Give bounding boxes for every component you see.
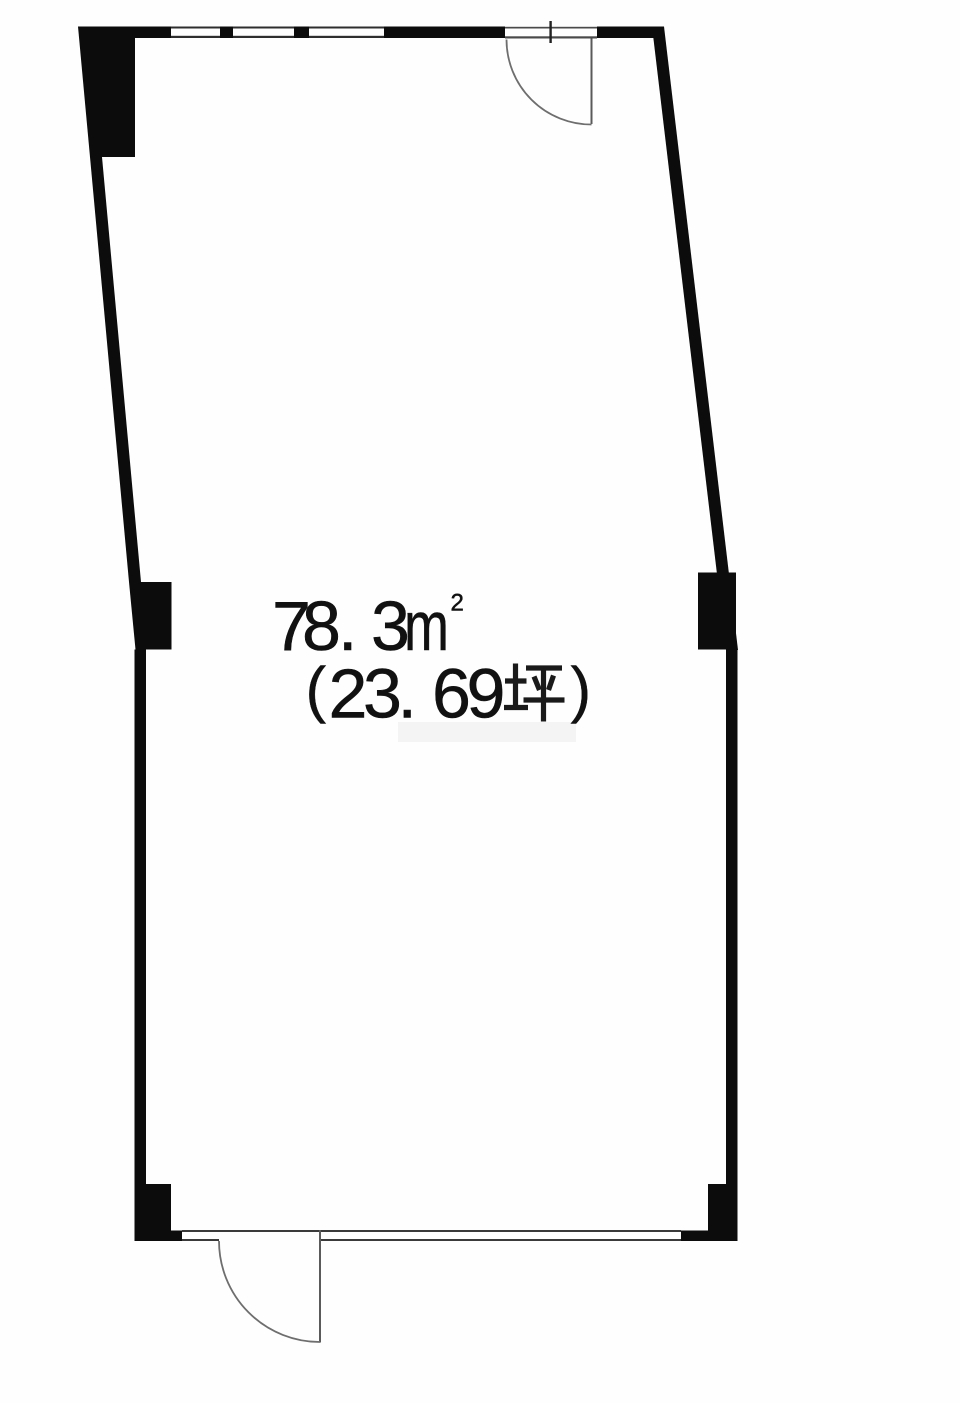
svg-text:23.: 23. xyxy=(329,655,417,733)
svg-text:69: 69 xyxy=(432,655,505,733)
svg-text:(: ( xyxy=(306,656,327,725)
svg-text:2: 2 xyxy=(451,590,464,617)
svg-text:78.: 78. xyxy=(272,587,357,665)
svg-text:m: m xyxy=(404,587,449,665)
svg-text:): ) xyxy=(571,656,592,725)
